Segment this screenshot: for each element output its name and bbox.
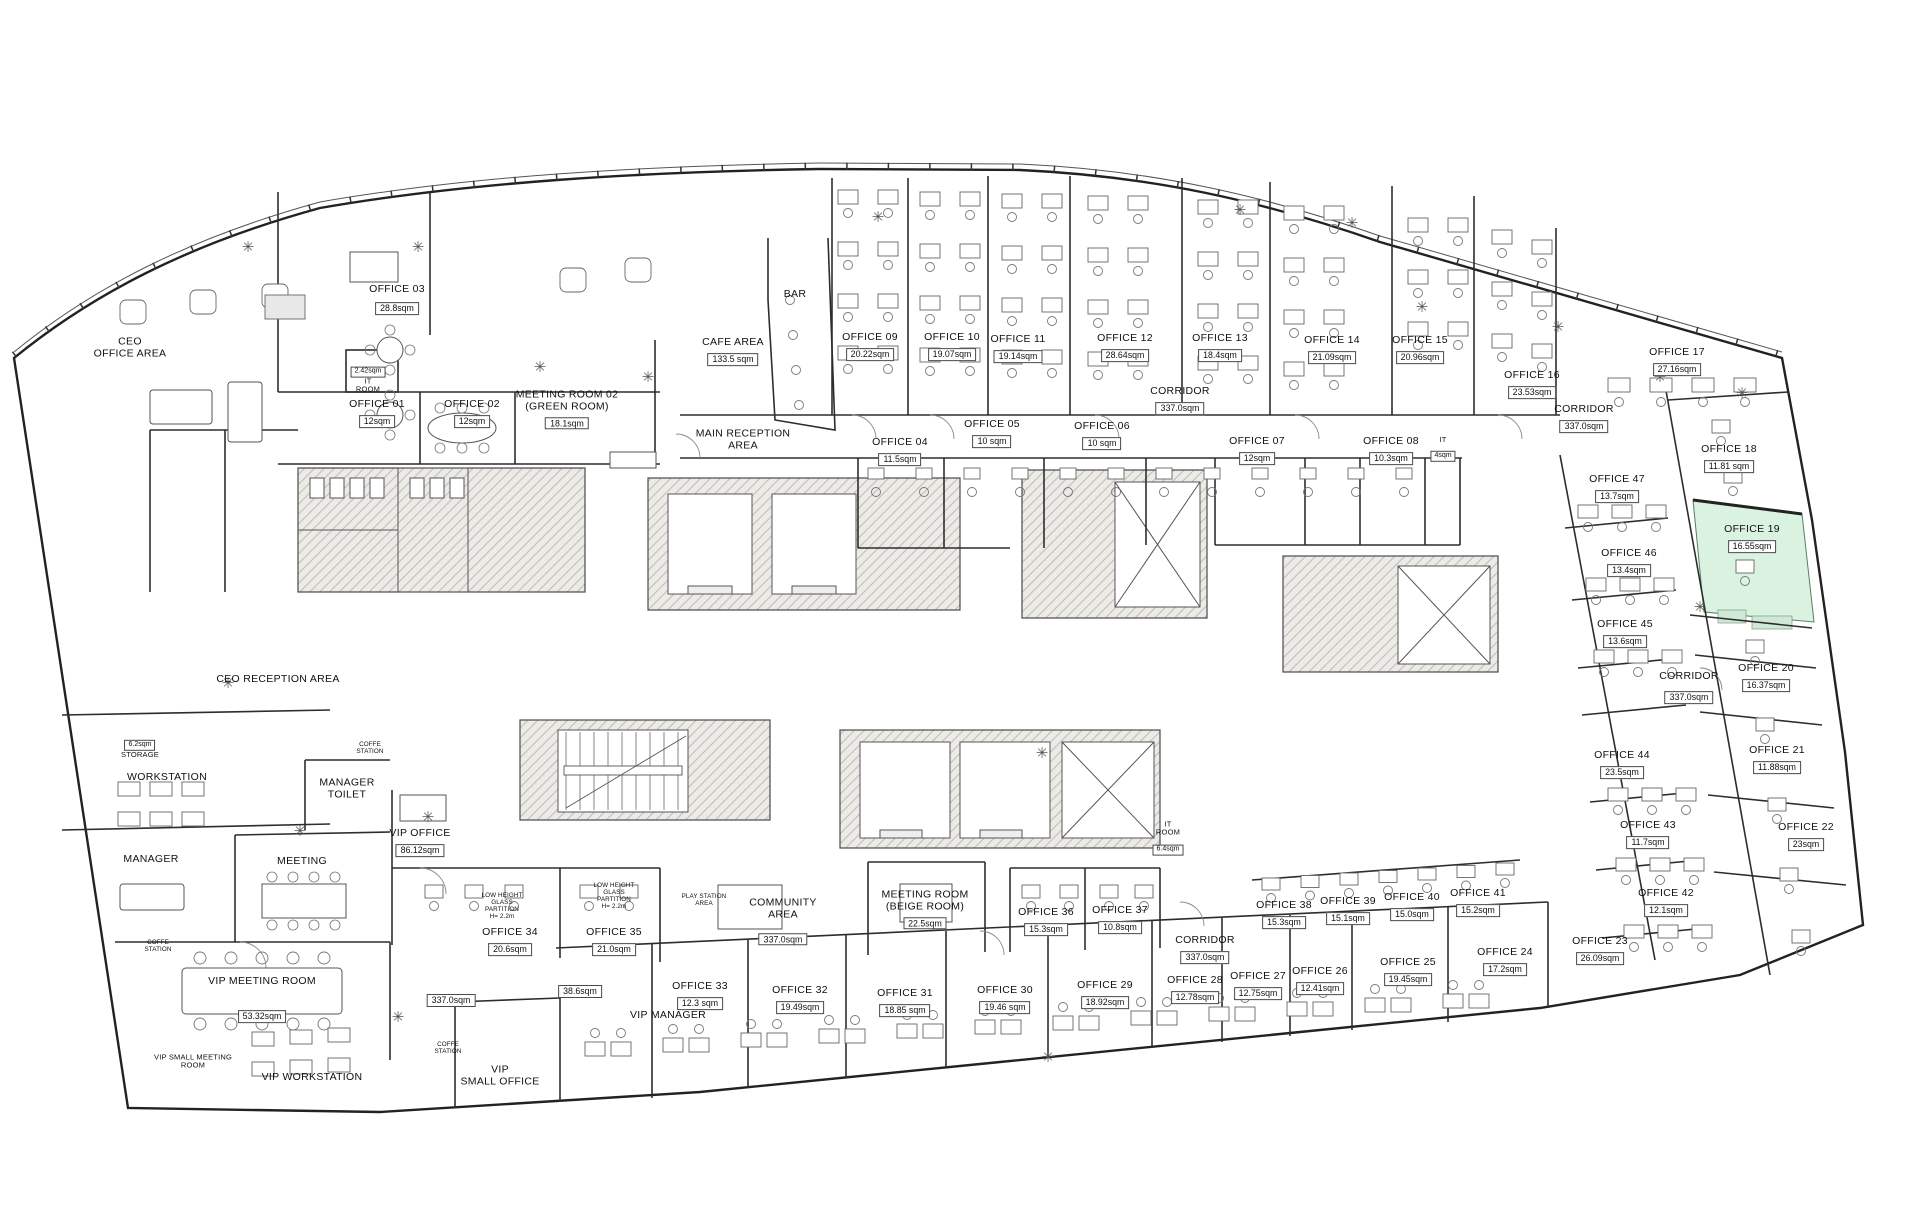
plant-icon: ✳ [1416, 299, 1429, 316]
plant-icon: ✳ [1694, 599, 1707, 616]
plant-icon: ✳ [1552, 319, 1565, 336]
plant-icon: ✳ [222, 675, 235, 692]
plant-icon: ✳ [1036, 745, 1049, 762]
floor-plan-canvas: ✳✳✳✳✳✳✳✳✳✳✳✳✳✳✳✳✳✳ CEOOFFICE AREAOFFICE … [0, 0, 1920, 1209]
plant-icon: ✳ [1234, 202, 1247, 219]
plant-icon: ✳ [534, 359, 547, 376]
plant-icon: ✳ [412, 239, 425, 256]
plant-icon: ✳ [1654, 369, 1667, 386]
plant-icon: ✳ [1736, 385, 1749, 402]
plant-icon: ✳ [642, 369, 655, 386]
plant-icon: ✳ [1346, 215, 1359, 232]
floor-plan-drawing: ✳✳✳✳✳✳✳✳✳✳✳✳✳✳✳✳✳✳ [0, 0, 1920, 1209]
plant-icon: ✳ [1042, 1049, 1055, 1066]
plant-icon: ✳ [294, 823, 307, 840]
plant-icon: ✳ [872, 209, 885, 226]
plant-icon: ✳ [392, 1009, 405, 1026]
plant-icon: ✳ [242, 239, 255, 256]
plant-icon: ✳ [422, 809, 435, 826]
